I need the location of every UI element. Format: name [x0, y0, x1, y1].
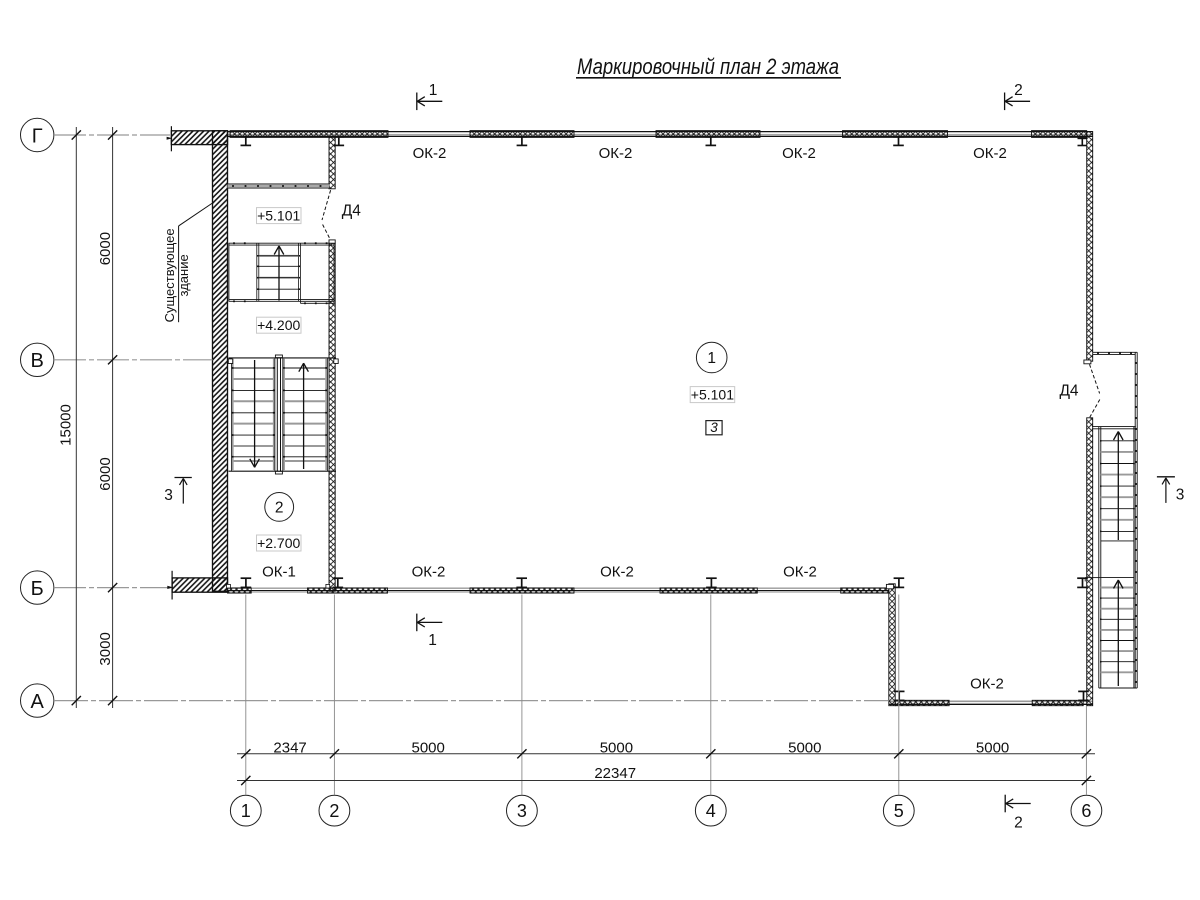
- svg-text:4: 4: [706, 801, 716, 821]
- svg-text:1: 1: [241, 801, 251, 821]
- svg-text:3: 3: [164, 487, 173, 504]
- svg-text:Д4: Д4: [342, 203, 361, 220]
- svg-text:3000: 3000: [97, 632, 114, 665]
- svg-text:ОК-2: ОК-2: [782, 145, 816, 162]
- svg-text:Д4: Д4: [1059, 382, 1078, 399]
- svg-text:ОК-2: ОК-2: [973, 145, 1007, 162]
- svg-text:+5.101: +5.101: [257, 208, 300, 224]
- svg-text:ОК-2: ОК-2: [783, 564, 817, 581]
- svg-text:6000: 6000: [97, 457, 114, 490]
- svg-text:6: 6: [1081, 801, 1091, 821]
- svg-text:Существующее: Существующее: [162, 228, 177, 322]
- svg-text:1: 1: [428, 632, 437, 649]
- svg-text:+5.101: +5.101: [691, 387, 734, 403]
- svg-text:2: 2: [1014, 82, 1023, 99]
- svg-text:5: 5: [894, 801, 904, 821]
- svg-text:В: В: [31, 350, 44, 372]
- svg-text:1: 1: [707, 350, 716, 367]
- svg-text:15000: 15000: [57, 404, 74, 446]
- svg-text:5000: 5000: [600, 739, 633, 756]
- svg-text:6000: 6000: [97, 232, 114, 265]
- svg-text:2347: 2347: [273, 739, 306, 756]
- svg-text:3: 3: [710, 420, 718, 435]
- svg-text:ОК-2: ОК-2: [413, 145, 447, 162]
- svg-text:3: 3: [1176, 486, 1185, 503]
- svg-text:5000: 5000: [788, 739, 821, 756]
- svg-text:3: 3: [517, 801, 527, 821]
- svg-text:ОК-2: ОК-2: [970, 676, 1004, 693]
- svg-text:2: 2: [329, 801, 339, 821]
- svg-text:ОК-2: ОК-2: [412, 564, 446, 581]
- svg-text:2: 2: [275, 500, 284, 517]
- svg-text:2: 2: [1014, 815, 1023, 832]
- svg-text:Маркировочный план 2 этажа: Маркировочный план 2 этажа: [577, 54, 839, 79]
- svg-text:Б: Б: [31, 578, 44, 600]
- svg-text:Г: Г: [32, 125, 43, 147]
- svg-text:1: 1: [429, 82, 438, 99]
- svg-text:5000: 5000: [412, 739, 445, 756]
- svg-text:ОК-2: ОК-2: [599, 145, 633, 162]
- svg-text:+4.200: +4.200: [257, 317, 300, 333]
- svg-text:+2.700: +2.700: [257, 535, 300, 551]
- svg-text:ОК-2: ОК-2: [600, 564, 634, 581]
- svg-text:А: А: [31, 691, 45, 713]
- svg-text:ОК-1: ОК-1: [262, 564, 296, 581]
- svg-text:22347: 22347: [594, 765, 636, 782]
- svg-text:5000: 5000: [976, 739, 1009, 756]
